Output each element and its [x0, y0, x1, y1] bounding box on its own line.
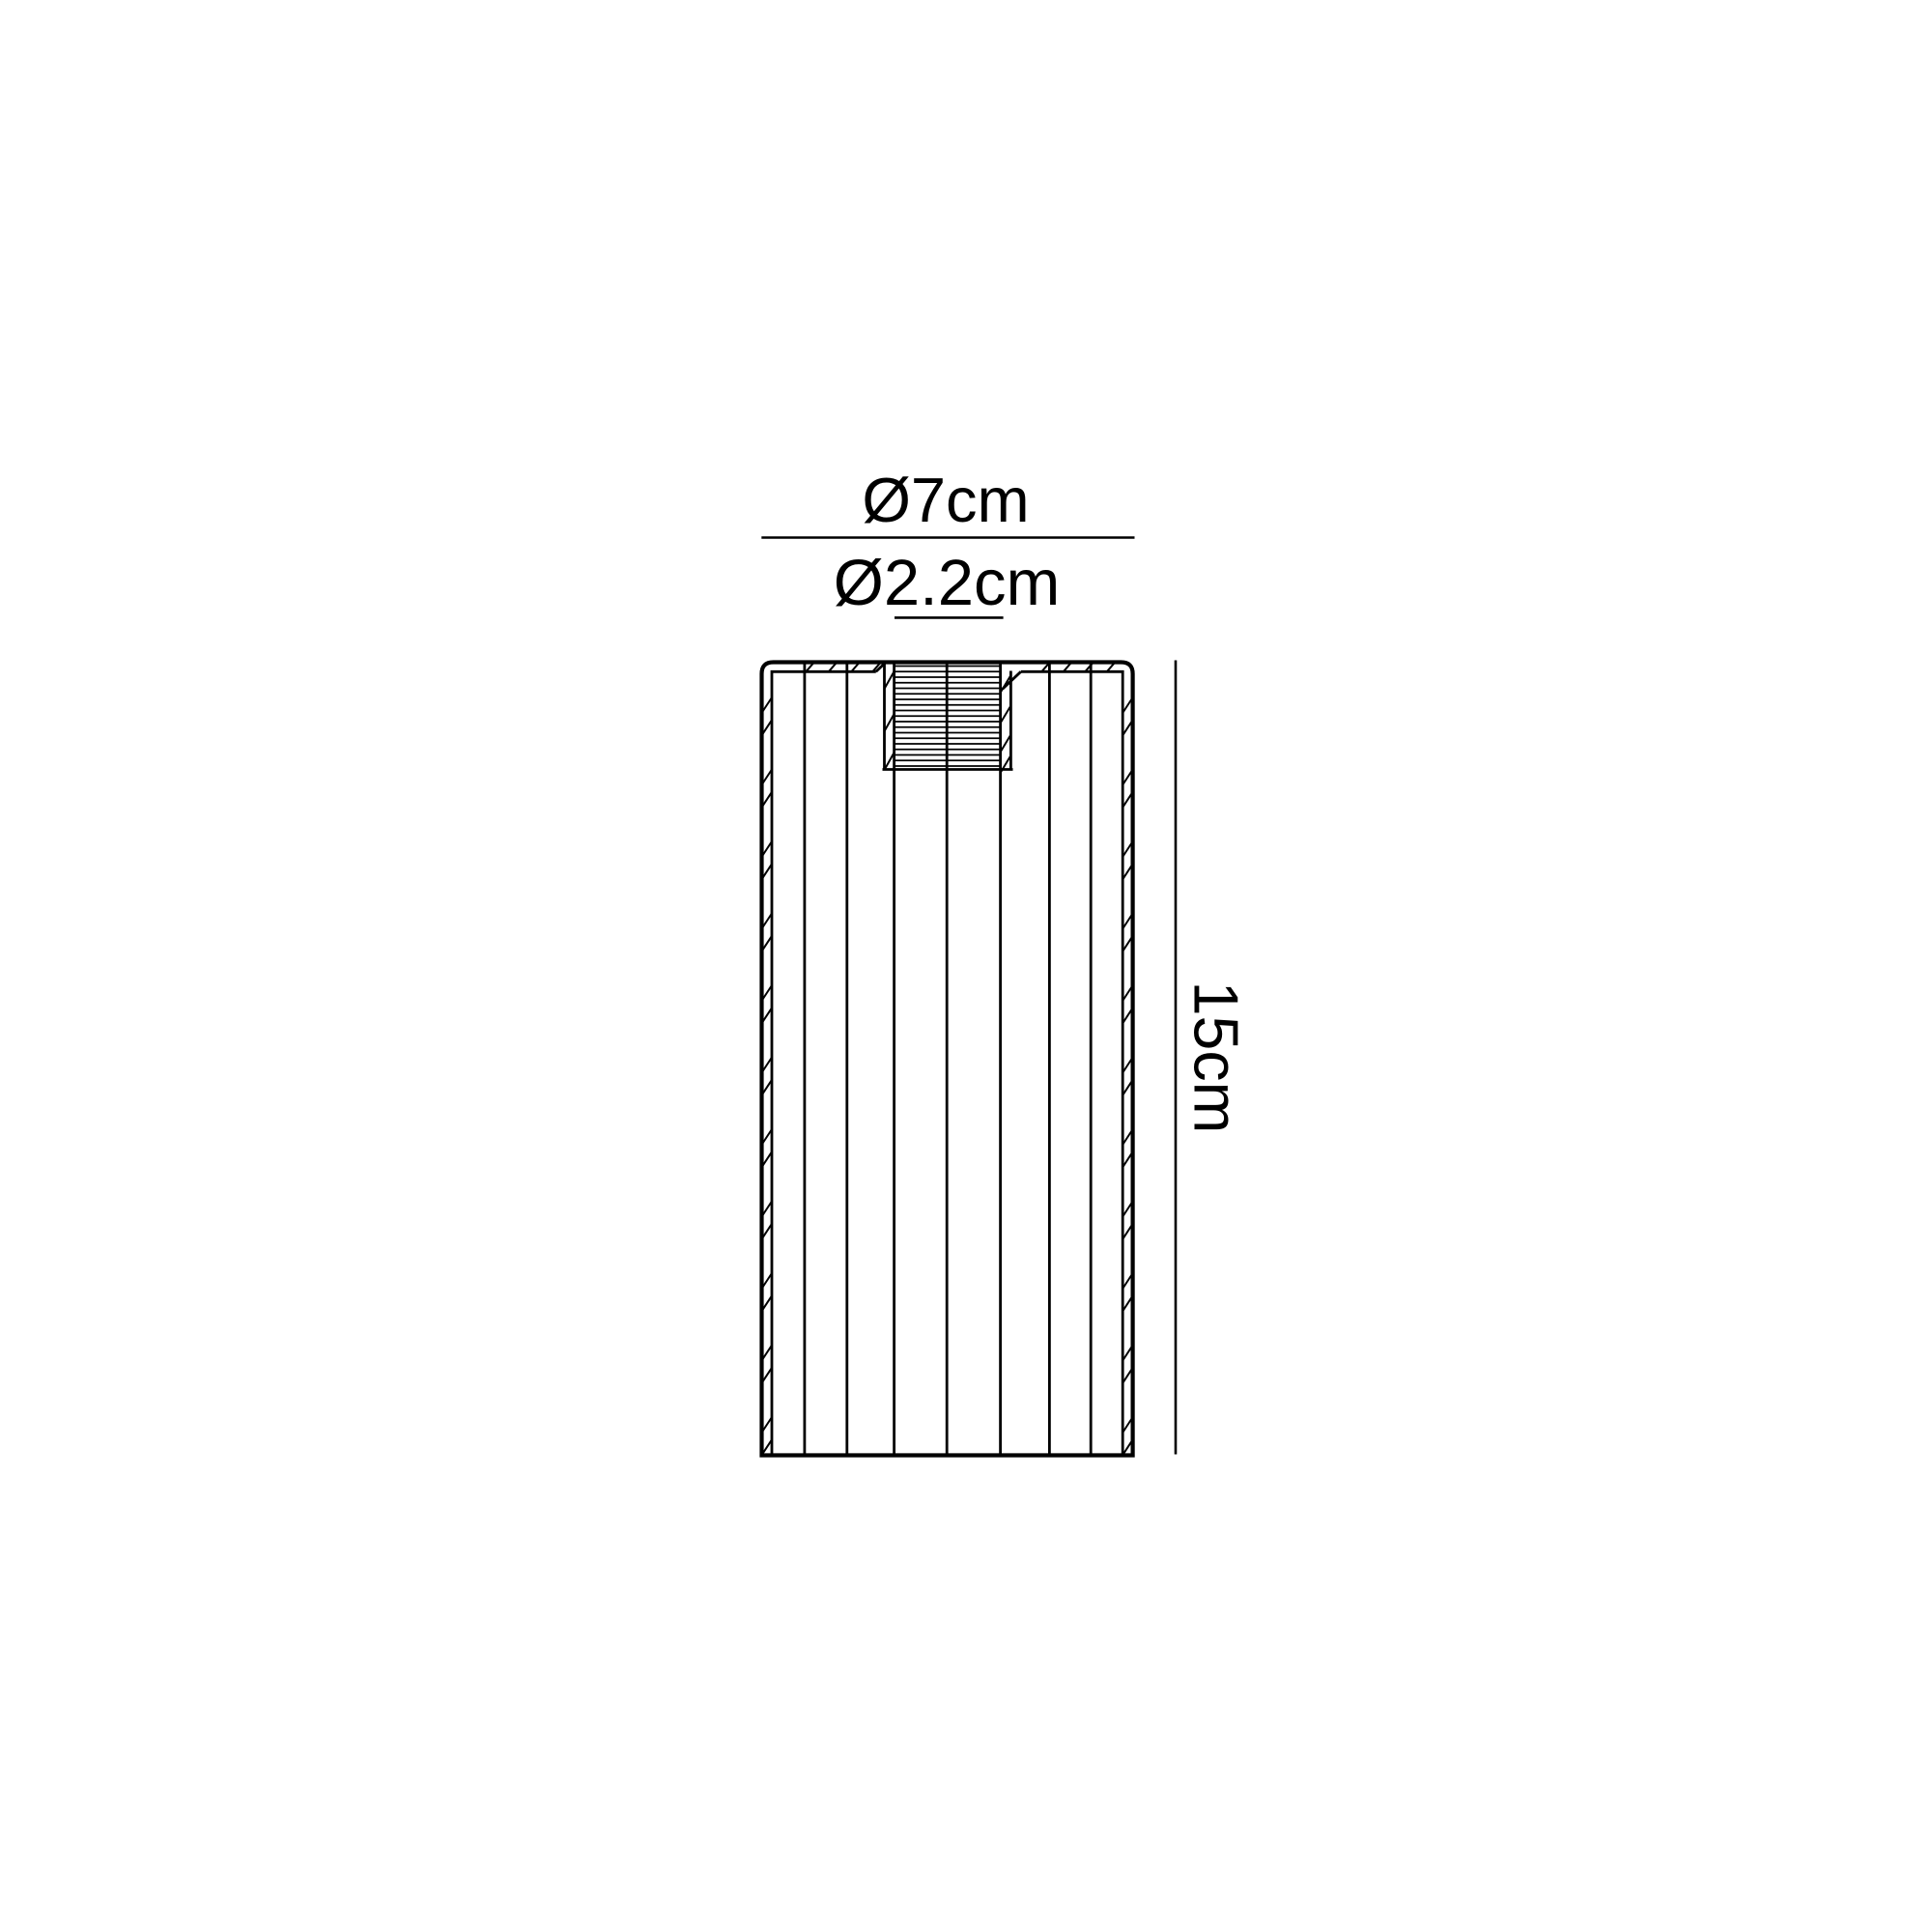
- svg-text:15cm: 15cm: [1181, 981, 1251, 1134]
- svg-text:Ø2.2cm: Ø2.2cm: [834, 547, 1061, 619]
- svg-text:Ø7cm: Ø7cm: [862, 465, 1029, 535]
